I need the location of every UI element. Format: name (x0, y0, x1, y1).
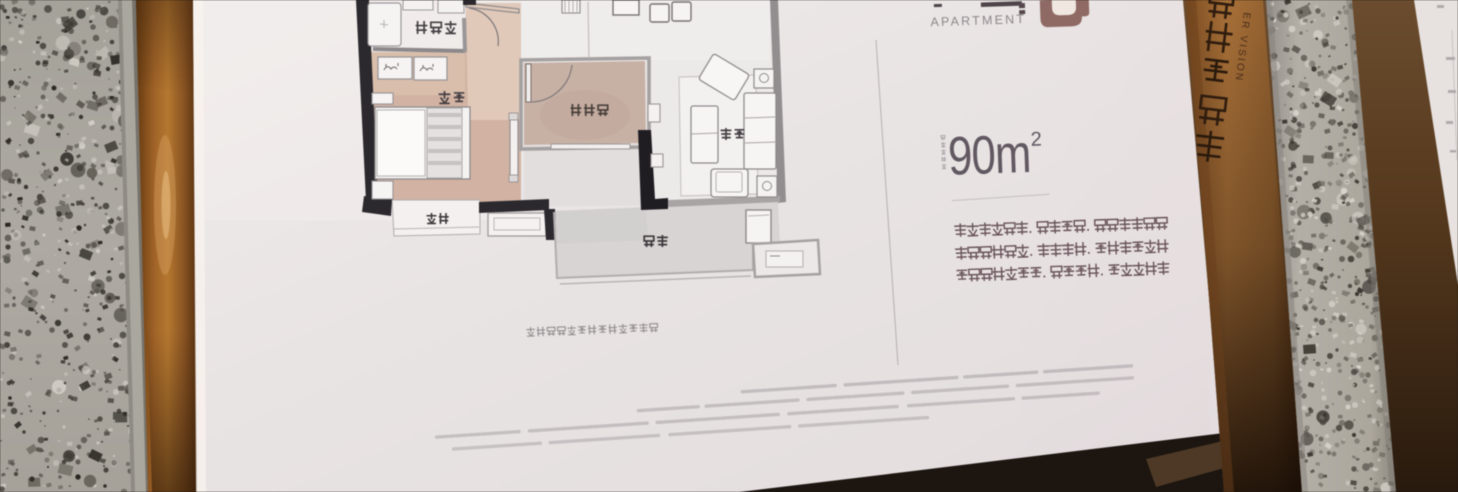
svg-text:90m: 90m (947, 123, 1031, 186)
svg-text:2: 2 (1030, 128, 1042, 150)
